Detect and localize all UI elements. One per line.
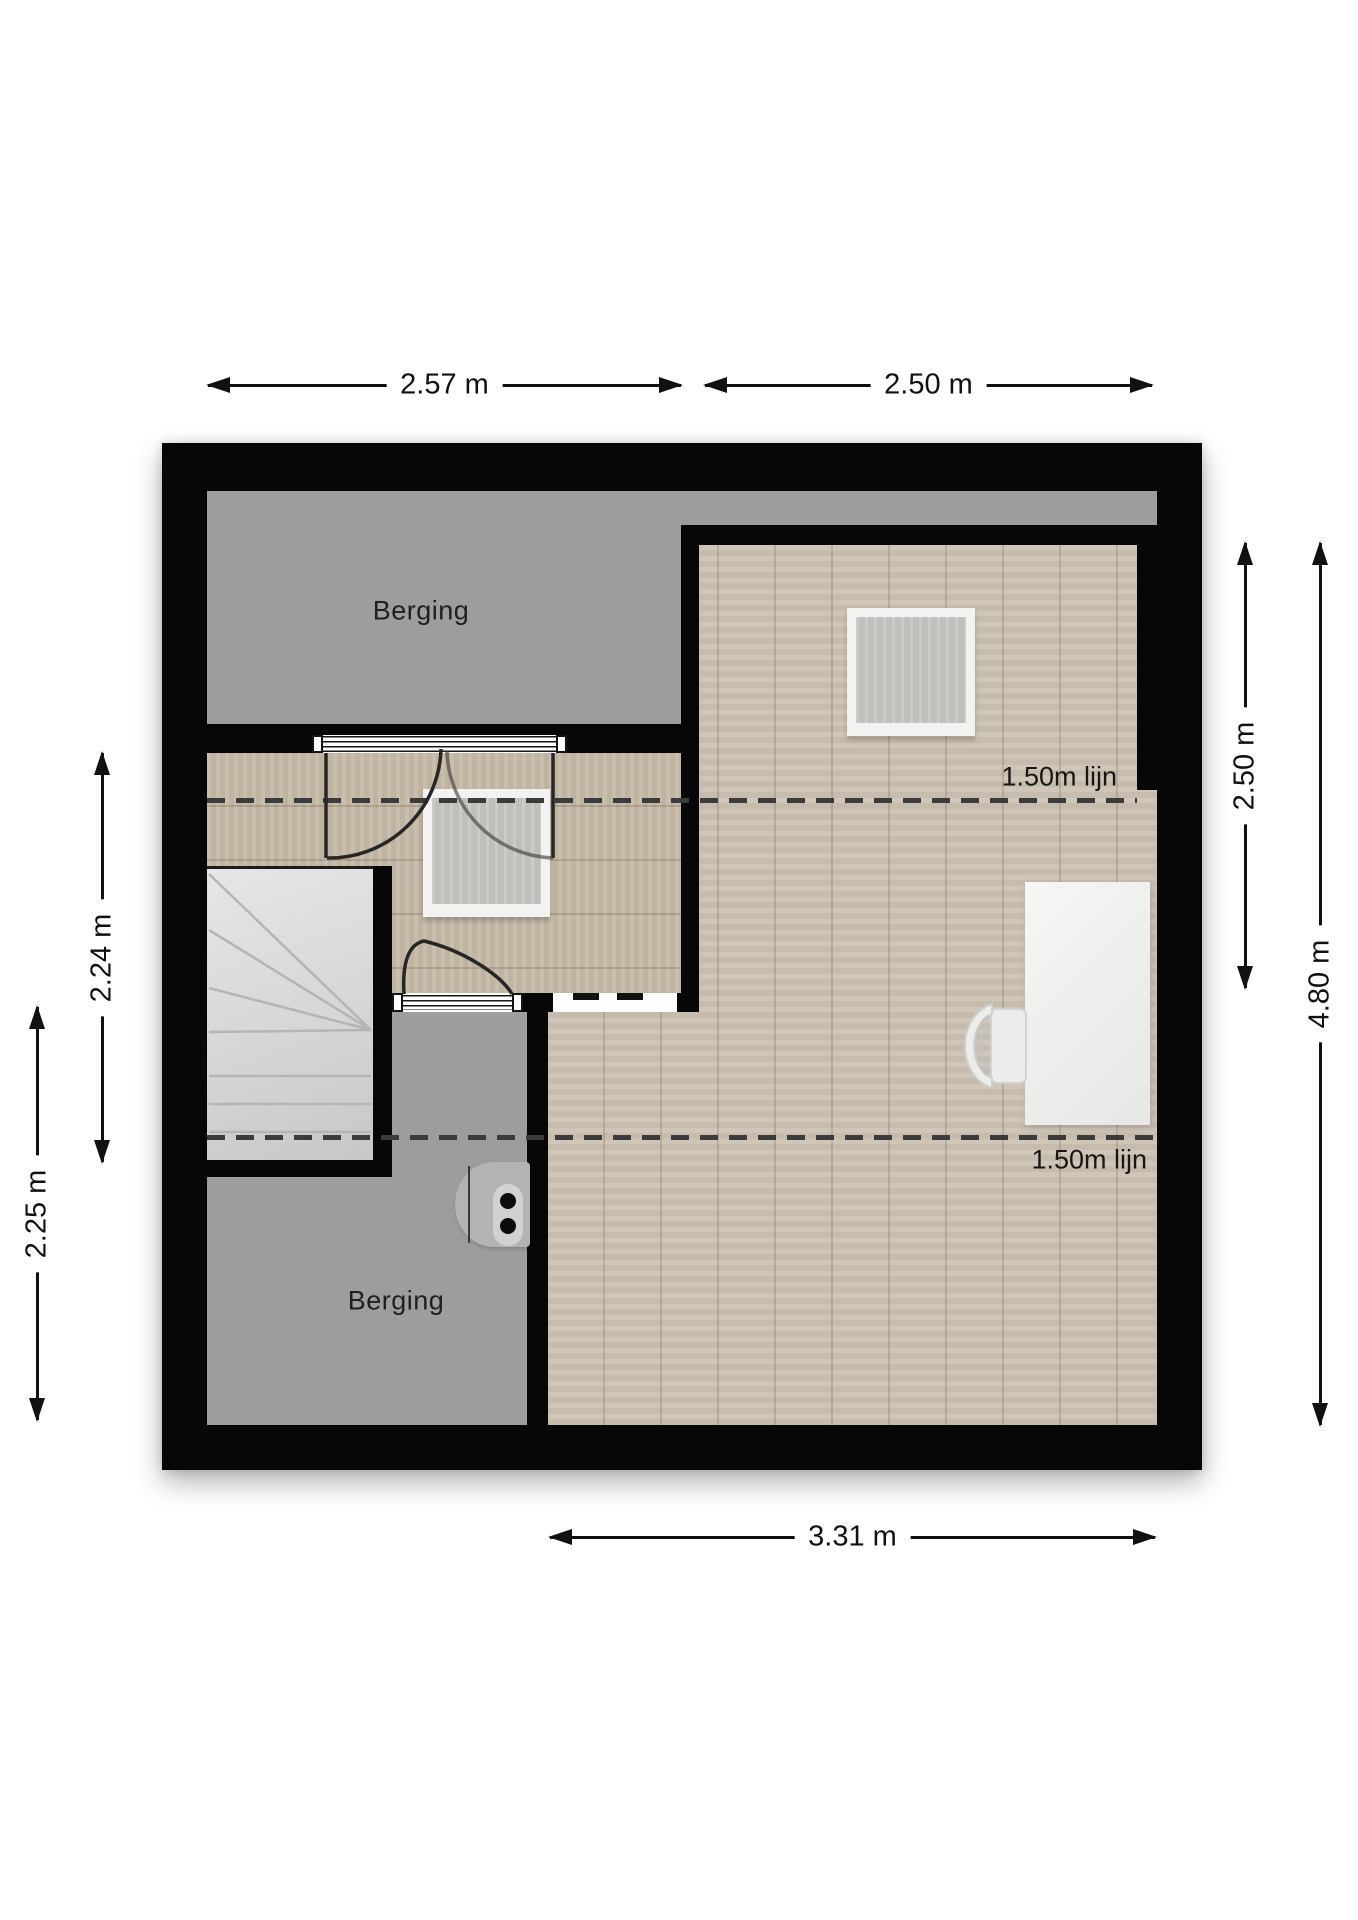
door-opening-berging-bottom [392,993,523,1012]
dimension-right-total: 4.80 m [1304,543,1336,1425]
socket-line [468,1166,470,1243]
wall-berging-left [207,735,312,753]
dimension-left-lower: 2.25 m [21,1007,53,1420]
wall-landing-bottom-a [523,993,553,1012]
dimension-bottom: 3.31 m [550,1521,1155,1553]
staircase [207,866,373,1160]
chair-seat [990,1008,1027,1084]
knee-line-label-1: 1.50m lijn [1001,762,1117,793]
dimension-right-total-label: 4.80 m [1304,926,1337,1043]
wall-socket [455,1162,530,1247]
dimension-left-upper-label: 2.24 m [86,899,119,1016]
roof-window-landing [423,789,550,917]
wall-mainroom-top [681,525,1202,545]
passage-dash [617,993,643,1000]
floorplan-canvas: Berging Berging 1.50m lijn 1.50m lijn 2.… [0,0,1358,1920]
passage-dash [573,993,599,1000]
wall-stairs-right [373,866,392,1177]
wall-berging-lintel [207,724,681,735]
wall-right-ledge [1137,545,1157,790]
dimension-bottom-label: 3.31 m [794,1521,911,1554]
dimension-right-upper-label: 2.50 m [1229,707,1262,824]
wall-outer-bottom [162,1425,1202,1470]
roof-window-pane [856,617,966,723]
wall-outer-top [162,443,1202,491]
wall-outer-right [1157,491,1202,1425]
knee-wall-line-2 [207,1135,1155,1140]
knee-line-label-2: 1.50m lijn [1031,1145,1147,1176]
roof-window-main-room [847,608,975,736]
window-post-left [312,735,323,753]
berging-top-floor-strip [681,491,1157,525]
wall-outer-left [162,443,207,1470]
knee-wall-line-1 [207,798,1137,803]
door-post-left [392,993,403,1012]
open-passage [553,993,677,1012]
dimension-top-right-label: 2.50 m [870,369,987,402]
window-hatch [323,736,556,752]
wall-landing-bottom-b [677,993,699,1012]
roof-window-pane [432,798,541,904]
dimension-top-left: 2.57 m [208,369,681,401]
wall-stairs-bottom [207,1160,392,1177]
wall-divider-vertical [681,525,699,1012]
wall-berging-bottom-divider [527,1012,548,1425]
room-label-berging-bottom: Berging [348,1286,445,1317]
dimension-left-upper: 2.24 m [86,753,118,1162]
dimension-right-upper: 2.50 m [1229,543,1261,988]
wall-berging-right [567,735,681,753]
door-hatch [403,995,512,1010]
door-post-right [512,993,523,1012]
room-label-berging-top: Berging [373,596,470,627]
socket-dot [500,1193,516,1209]
desk [1025,882,1150,1125]
dimension-left-lower-label: 2.25 m [21,1155,54,1272]
dimension-top-left-label: 2.57 m [386,369,503,402]
interior-window-berging [312,735,567,753]
socket-dot [500,1218,516,1234]
dimension-top-right: 2.50 m [705,369,1152,401]
window-post-right [556,735,567,753]
